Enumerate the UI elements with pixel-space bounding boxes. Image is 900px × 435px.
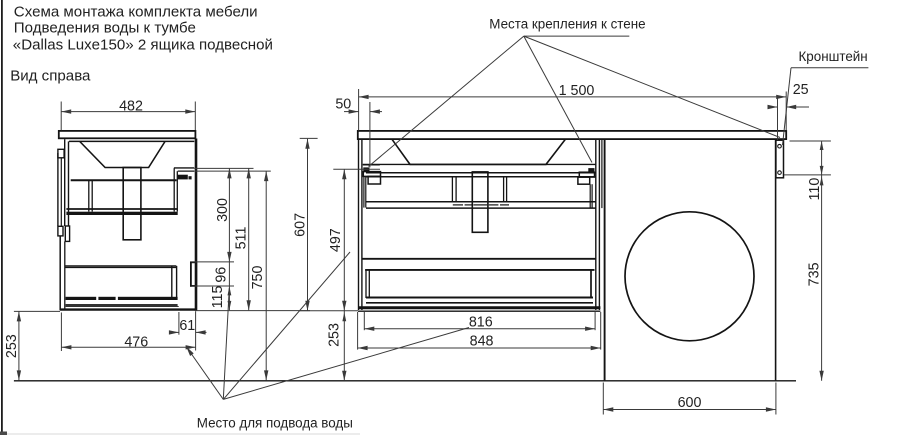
- svg-text:607: 607: [293, 213, 309, 237]
- svg-text:482: 482: [119, 99, 143, 115]
- svg-text:25: 25: [793, 82, 809, 98]
- svg-text:750: 750: [250, 266, 266, 290]
- svg-text:497: 497: [328, 228, 344, 252]
- svg-text:61: 61: [179, 318, 195, 334]
- svg-text:511: 511: [234, 227, 250, 250]
- svg-text:848: 848: [470, 333, 494, 349]
- svg-text:600: 600: [678, 395, 702, 411]
- svg-text:Места крепления к стене: Места крепления к стене: [489, 17, 645, 32]
- svg-text:300: 300: [215, 198, 231, 222]
- svg-text:96: 96: [213, 267, 229, 283]
- svg-text:Подведения воды к тумбе: Подведения воды к тумбе: [14, 20, 196, 37]
- svg-text:816: 816: [469, 314, 493, 330]
- svg-text:Вид справа: Вид справа: [10, 67, 91, 84]
- svg-text:«Dallas Luxe150» 2 ящика подве: «Dallas Luxe150» 2 ящика подвесной: [13, 37, 273, 54]
- svg-text:Место для подвода воды: Место для подвода воды: [197, 415, 353, 430]
- svg-text:115: 115: [210, 286, 226, 309]
- svg-text:1 500: 1 500: [559, 83, 595, 99]
- svg-text:Схема монтажа комплекта мебели: Схема монтажа комплекта мебели: [14, 3, 258, 20]
- svg-text:253: 253: [4, 334, 20, 358]
- svg-text:50: 50: [335, 96, 351, 112]
- svg-text:253: 253: [327, 323, 343, 347]
- svg-text:476: 476: [124, 334, 148, 350]
- svg-text:110: 110: [807, 178, 823, 201]
- svg-text:735: 735: [806, 262, 822, 286]
- svg-text:Кронштейн: Кронштейн: [799, 49, 868, 64]
